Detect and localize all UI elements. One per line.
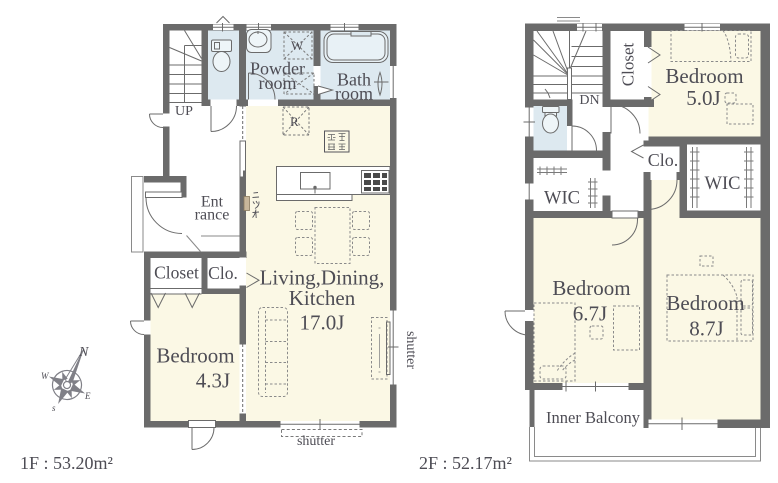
svg-text:Closet: Closet	[619, 43, 638, 87]
svg-text:Kitchen: Kitchen	[289, 286, 356, 310]
svg-text:Inner Balcony: Inner Balcony	[546, 408, 641, 427]
svg-text:room: room	[259, 73, 297, 93]
svg-text:E: E	[84, 391, 91, 401]
svg-text:Clo.: Clo.	[208, 263, 238, 283]
svg-text:UP: UP	[175, 104, 193, 119]
svg-text:Closet: Closet	[154, 263, 199, 283]
svg-text:shutter: shutter	[297, 434, 335, 449]
svg-text:W: W	[41, 371, 50, 381]
svg-text:2F : 52.17m²: 2F : 52.17m²	[419, 453, 512, 473]
svg-text:Clo.: Clo.	[648, 150, 679, 170]
svg-text:Bedroom: Bedroom	[552, 276, 630, 300]
svg-text:Bedroom: Bedroom	[665, 64, 743, 88]
svg-text:rance: rance	[195, 207, 230, 224]
svg-text:1F : 53.20m²: 1F : 53.20m²	[20, 453, 113, 473]
svg-text:WIC: WIC	[544, 189, 580, 209]
svg-text:8.7J: 8.7J	[689, 317, 723, 341]
svg-text:s: s	[52, 403, 56, 413]
svg-text:W: W	[291, 38, 304, 53]
svg-text:Bedroom: Bedroom	[666, 291, 744, 315]
svg-text:room: room	[335, 84, 373, 104]
svg-text:WIC: WIC	[705, 174, 741, 194]
svg-text:6.7J: 6.7J	[573, 302, 607, 326]
svg-text:shutter: shutter	[403, 331, 418, 369]
svg-text:4.3J: 4.3J	[196, 369, 230, 393]
svg-text:N: N	[78, 345, 89, 360]
svg-text:17.0J: 17.0J	[300, 311, 345, 335]
svg-text:Bedroom: Bedroom	[156, 344, 234, 368]
svg-text:R: R	[290, 114, 299, 129]
svg-text:5.0J: 5.0J	[686, 86, 720, 110]
svg-text:DN: DN	[579, 93, 599, 108]
